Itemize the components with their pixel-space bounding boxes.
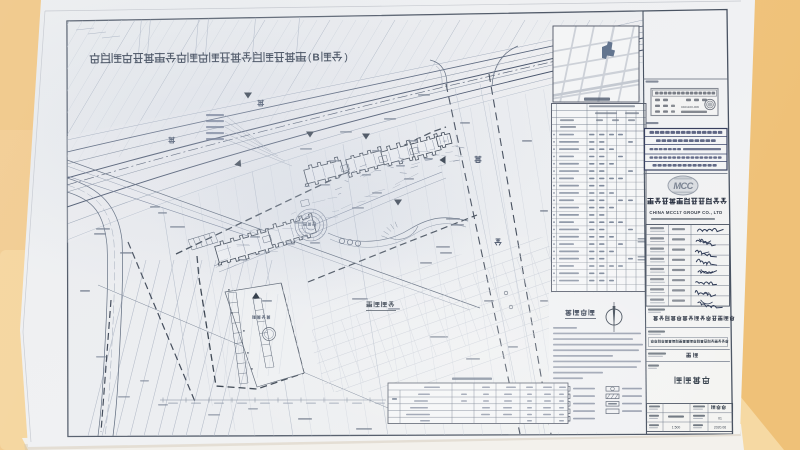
svg-text:CHINA MCC17 GROUP CO., LTD: CHINA MCC17 GROUP CO., LTD — [649, 210, 722, 215]
svg-text:MCC: MCC — [673, 181, 693, 191]
svg-text:0401100-006: 0401100-006 — [681, 105, 699, 109]
svg-text:2020.06: 2020.06 — [714, 426, 726, 430]
